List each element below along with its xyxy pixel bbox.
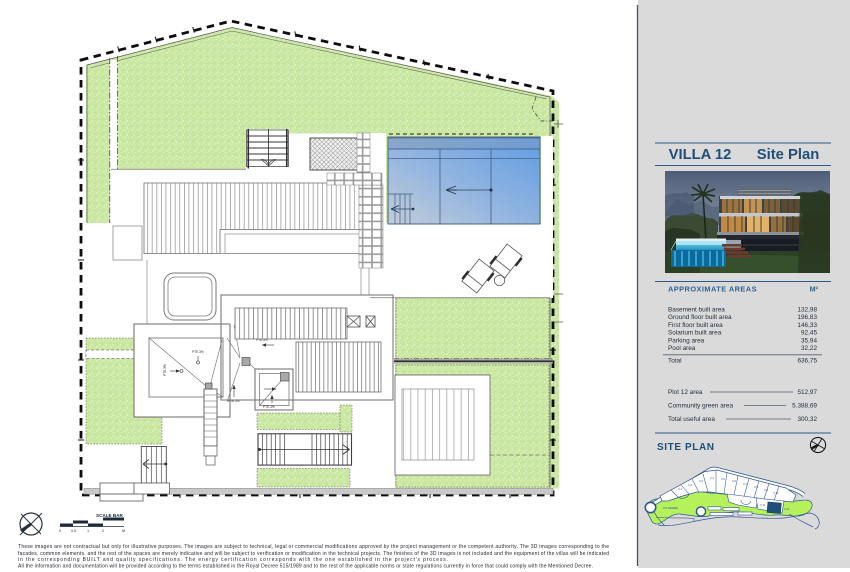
svg-text:35,94: 35,94 bbox=[801, 337, 817, 344]
svg-text:Basement built area: Basement built area bbox=[668, 307, 725, 314]
svg-text:512,97: 512,97 bbox=[797, 389, 817, 396]
svg-text:All the information and docume: All the information and documentation wi… bbox=[18, 563, 593, 569]
svg-text:V-10: V-10 bbox=[773, 491, 779, 495]
svg-text:V-2: V-2 bbox=[688, 483, 692, 487]
svg-text:M²: M² bbox=[810, 285, 819, 294]
svg-text:SCALE BAR: SCALE BAR bbox=[96, 513, 123, 518]
svg-text:V-11: V-11 bbox=[760, 503, 766, 507]
svg-text:These images are not contractu: These images are not contractual but onl… bbox=[18, 544, 609, 550]
svg-text:32,22: 32,22 bbox=[801, 345, 817, 352]
svg-text:196,83: 196,83 bbox=[797, 314, 817, 321]
svg-text:132,98: 132,98 bbox=[797, 307, 817, 314]
svg-text:PTE.3%: PTE.3% bbox=[263, 405, 275, 409]
svg-text:V-12: V-12 bbox=[784, 507, 790, 511]
svg-text:Ground floor built area: Ground floor built area bbox=[668, 314, 732, 321]
svg-text:VILLA 12: VILLA 12 bbox=[669, 147, 732, 163]
svg-text:ZV-VERDE: ZV-VERDE bbox=[663, 506, 678, 510]
svg-text:V-7: V-7 bbox=[743, 482, 747, 486]
svg-text:Pool area: Pool area bbox=[668, 345, 696, 352]
svg-text:5.388,69: 5.388,69 bbox=[792, 403, 817, 410]
svg-text:V-1: V-1 bbox=[678, 487, 682, 491]
svg-text:146,33: 146,33 bbox=[797, 322, 817, 329]
svg-text:M: M bbox=[122, 529, 125, 533]
svg-text:Plot 12 area: Plot 12 area bbox=[668, 389, 703, 396]
svg-text:V-5: V-5 bbox=[721, 477, 725, 481]
svg-text:Total useful area: Total useful area bbox=[668, 416, 715, 423]
svg-text:Community green area: Community green area bbox=[668, 403, 733, 410]
svg-text:V-3: V-3 bbox=[699, 479, 703, 483]
svg-text:First floor built area: First floor built area bbox=[668, 322, 723, 329]
svg-text:V-9: V-9 bbox=[764, 488, 768, 492]
svg-text:PTE.3%: PTE.3% bbox=[192, 350, 204, 354]
svg-text:Site Plan: Site Plan bbox=[757, 147, 820, 163]
svg-text:APPROXIMATE AREAS: APPROXIMATE AREAS bbox=[668, 285, 757, 294]
svg-text:92,45: 92,45 bbox=[801, 330, 817, 337]
svg-text:0: 0 bbox=[59, 529, 61, 533]
svg-text:V-6: V-6 bbox=[732, 479, 736, 483]
svg-text:Parking area: Parking area bbox=[668, 337, 705, 344]
svg-text:1: 1 bbox=[87, 529, 89, 533]
svg-text:PTE.3%: PTE.3% bbox=[163, 364, 167, 376]
svg-text:in the corresponding BUILT and: in the corresponding BUILT and quality s… bbox=[18, 557, 448, 563]
svg-text:Solarium built area: Solarium built area bbox=[668, 330, 722, 337]
svg-text:Total: Total bbox=[668, 358, 682, 365]
svg-text:V-8: V-8 bbox=[754, 485, 758, 489]
svg-text:V-4: V-4 bbox=[710, 476, 714, 480]
svg-text:SITE PLAN: SITE PLAN bbox=[657, 442, 715, 453]
svg-text:2: 2 bbox=[102, 529, 104, 533]
svg-text:facades, common elements, and: facades, common elements, and the rest o… bbox=[18, 551, 609, 557]
svg-text:636,75: 636,75 bbox=[797, 358, 817, 365]
svg-text:300,32: 300,32 bbox=[797, 416, 817, 423]
svg-text:0,5: 0,5 bbox=[71, 529, 76, 533]
